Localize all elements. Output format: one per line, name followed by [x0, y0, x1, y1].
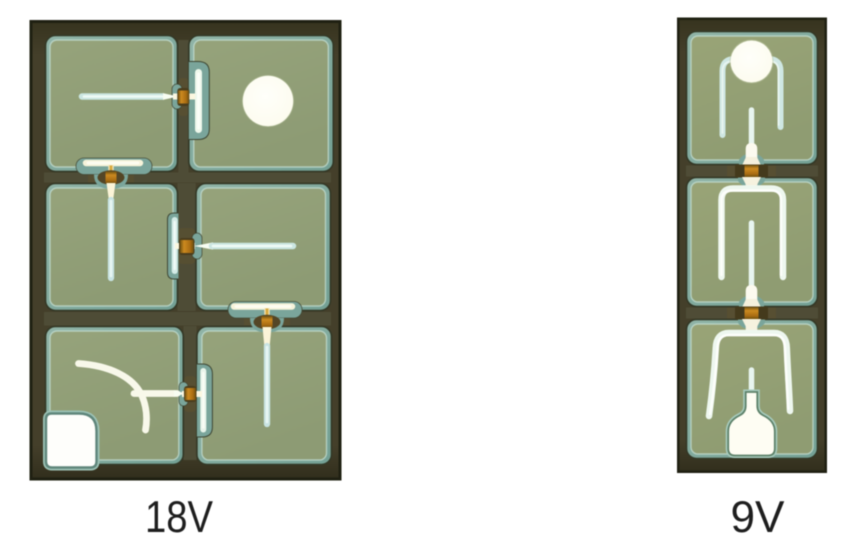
- svg-text:18V: 18V: [145, 493, 213, 542]
- svg-text:9V: 9V: [731, 493, 785, 542]
